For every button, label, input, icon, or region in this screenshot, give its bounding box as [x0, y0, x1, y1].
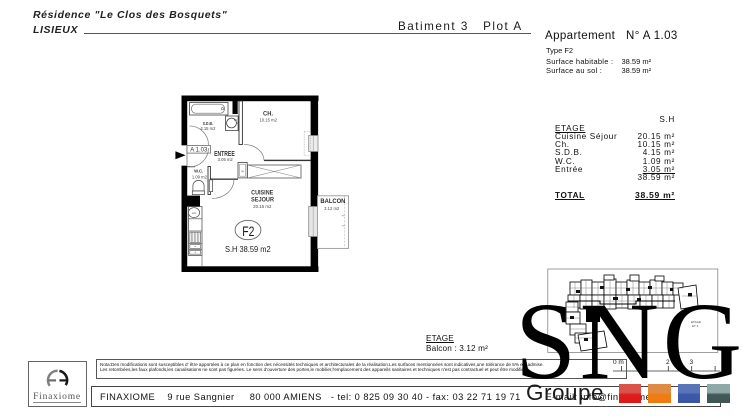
svg-text:SEJOUR: SEJOUR [251, 196, 275, 204]
svg-text:A 1.03: A 1.03 [190, 148, 208, 154]
svg-text:W.C.: W.C. [194, 169, 203, 174]
svg-text:F2: F2 [242, 224, 254, 240]
svg-text:20.15 m2: 20.15 m2 [253, 204, 272, 209]
svg-text:S.H 38.59 m2: S.H 38.59 m2 [225, 245, 271, 254]
svg-text:3.12 m2: 3.12 m2 [324, 206, 340, 211]
svg-text:1.09 m2: 1.09 m2 [192, 175, 208, 180]
svg-text:10.15 m2: 10.15 m2 [259, 117, 277, 122]
svg-text:3.05 m2: 3.05 m2 [218, 157, 234, 162]
svg-text:evic: evic [192, 211, 197, 215]
svg-text:BALCON: BALCON [320, 198, 345, 206]
svg-text:4.15 m2: 4.15 m2 [200, 126, 216, 131]
